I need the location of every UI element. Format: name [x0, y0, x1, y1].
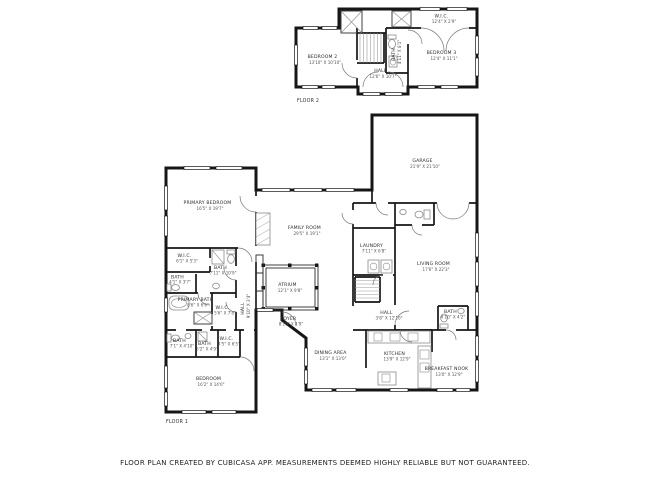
floor1-plan: PRIMARY BEDROOM 16'5" X 19'7" W.I.C. 6'1…: [165, 115, 479, 425]
room-label-bedroom-2: BEDROOM 2 13'10" X 10'10": [308, 43, 343, 65]
room-label-laundry: LAUNDRY 7'11" X 6'8": [360, 232, 388, 254]
floor2-closets: [341, 11, 411, 33]
room-label-bedroom: BEDROOM 16'2" X 14'0": [196, 365, 226, 387]
room-label-primary-bedroom: PRIMARY BEDROOM 16'5" X 19'7": [184, 189, 237, 211]
floor2-stairs: [360, 33, 381, 63]
room-label-wic-c: W.I.C. 4'5" X 6'5": [218, 325, 240, 347]
laundry-machines: [368, 260, 392, 273]
room-label-bath-b: BATH 4'1" X 3'7": [169, 264, 191, 285]
floor2-label: FLOOR 2: [297, 98, 319, 104]
room-label-living-room: LIVING ROOM 17'6" X 22'3": [417, 250, 455, 272]
floor1-label: FLOOR 1: [166, 419, 188, 425]
floor1-stairs: [355, 281, 380, 299]
room-label-atrium: ATRIUM 12'1" X 9'8": [278, 271, 303, 293]
floor2-plan: BEDROOM 2 13'10" X 10'10" HALL 12'6" X 1…: [295, 3, 479, 105]
room-label-dining-area: DINING AREA 13'1" X 13'0": [314, 339, 351, 361]
room-label-bath-e: BATH 4'10" X 4'2": [441, 298, 466, 320]
room-label-wic-a: W.I.C. 6'1" X 5'3": [176, 242, 198, 264]
room-label-wic-f2: W.I.C. 12'4" X 2'9": [432, 3, 457, 25]
floor-plan-canvas: BEDROOM 2 13'10" X 10'10" HALL 12'6" X 1…: [0, 0, 650, 488]
footer-disclaimer: FLOOR PLAN CREATED BY CUBICASA APP. MEAS…: [120, 459, 530, 467]
room-label-garage: GARAGE 21'9" X 21'10": [410, 147, 440, 169]
atrium-side-closets: [256, 255, 263, 310]
floor-plan-page: BEDROOM 2 13'10" X 10'10" HALL 12'6" X 1…: [0, 0, 650, 488]
fireplace: [256, 213, 270, 245]
room-label-family-room: FAMILY ROOM 29'5" X 19'1": [288, 214, 326, 236]
room-label-breakfast-nook: BREAKFAST NOOK 13'0" X 12'9": [425, 355, 474, 377]
